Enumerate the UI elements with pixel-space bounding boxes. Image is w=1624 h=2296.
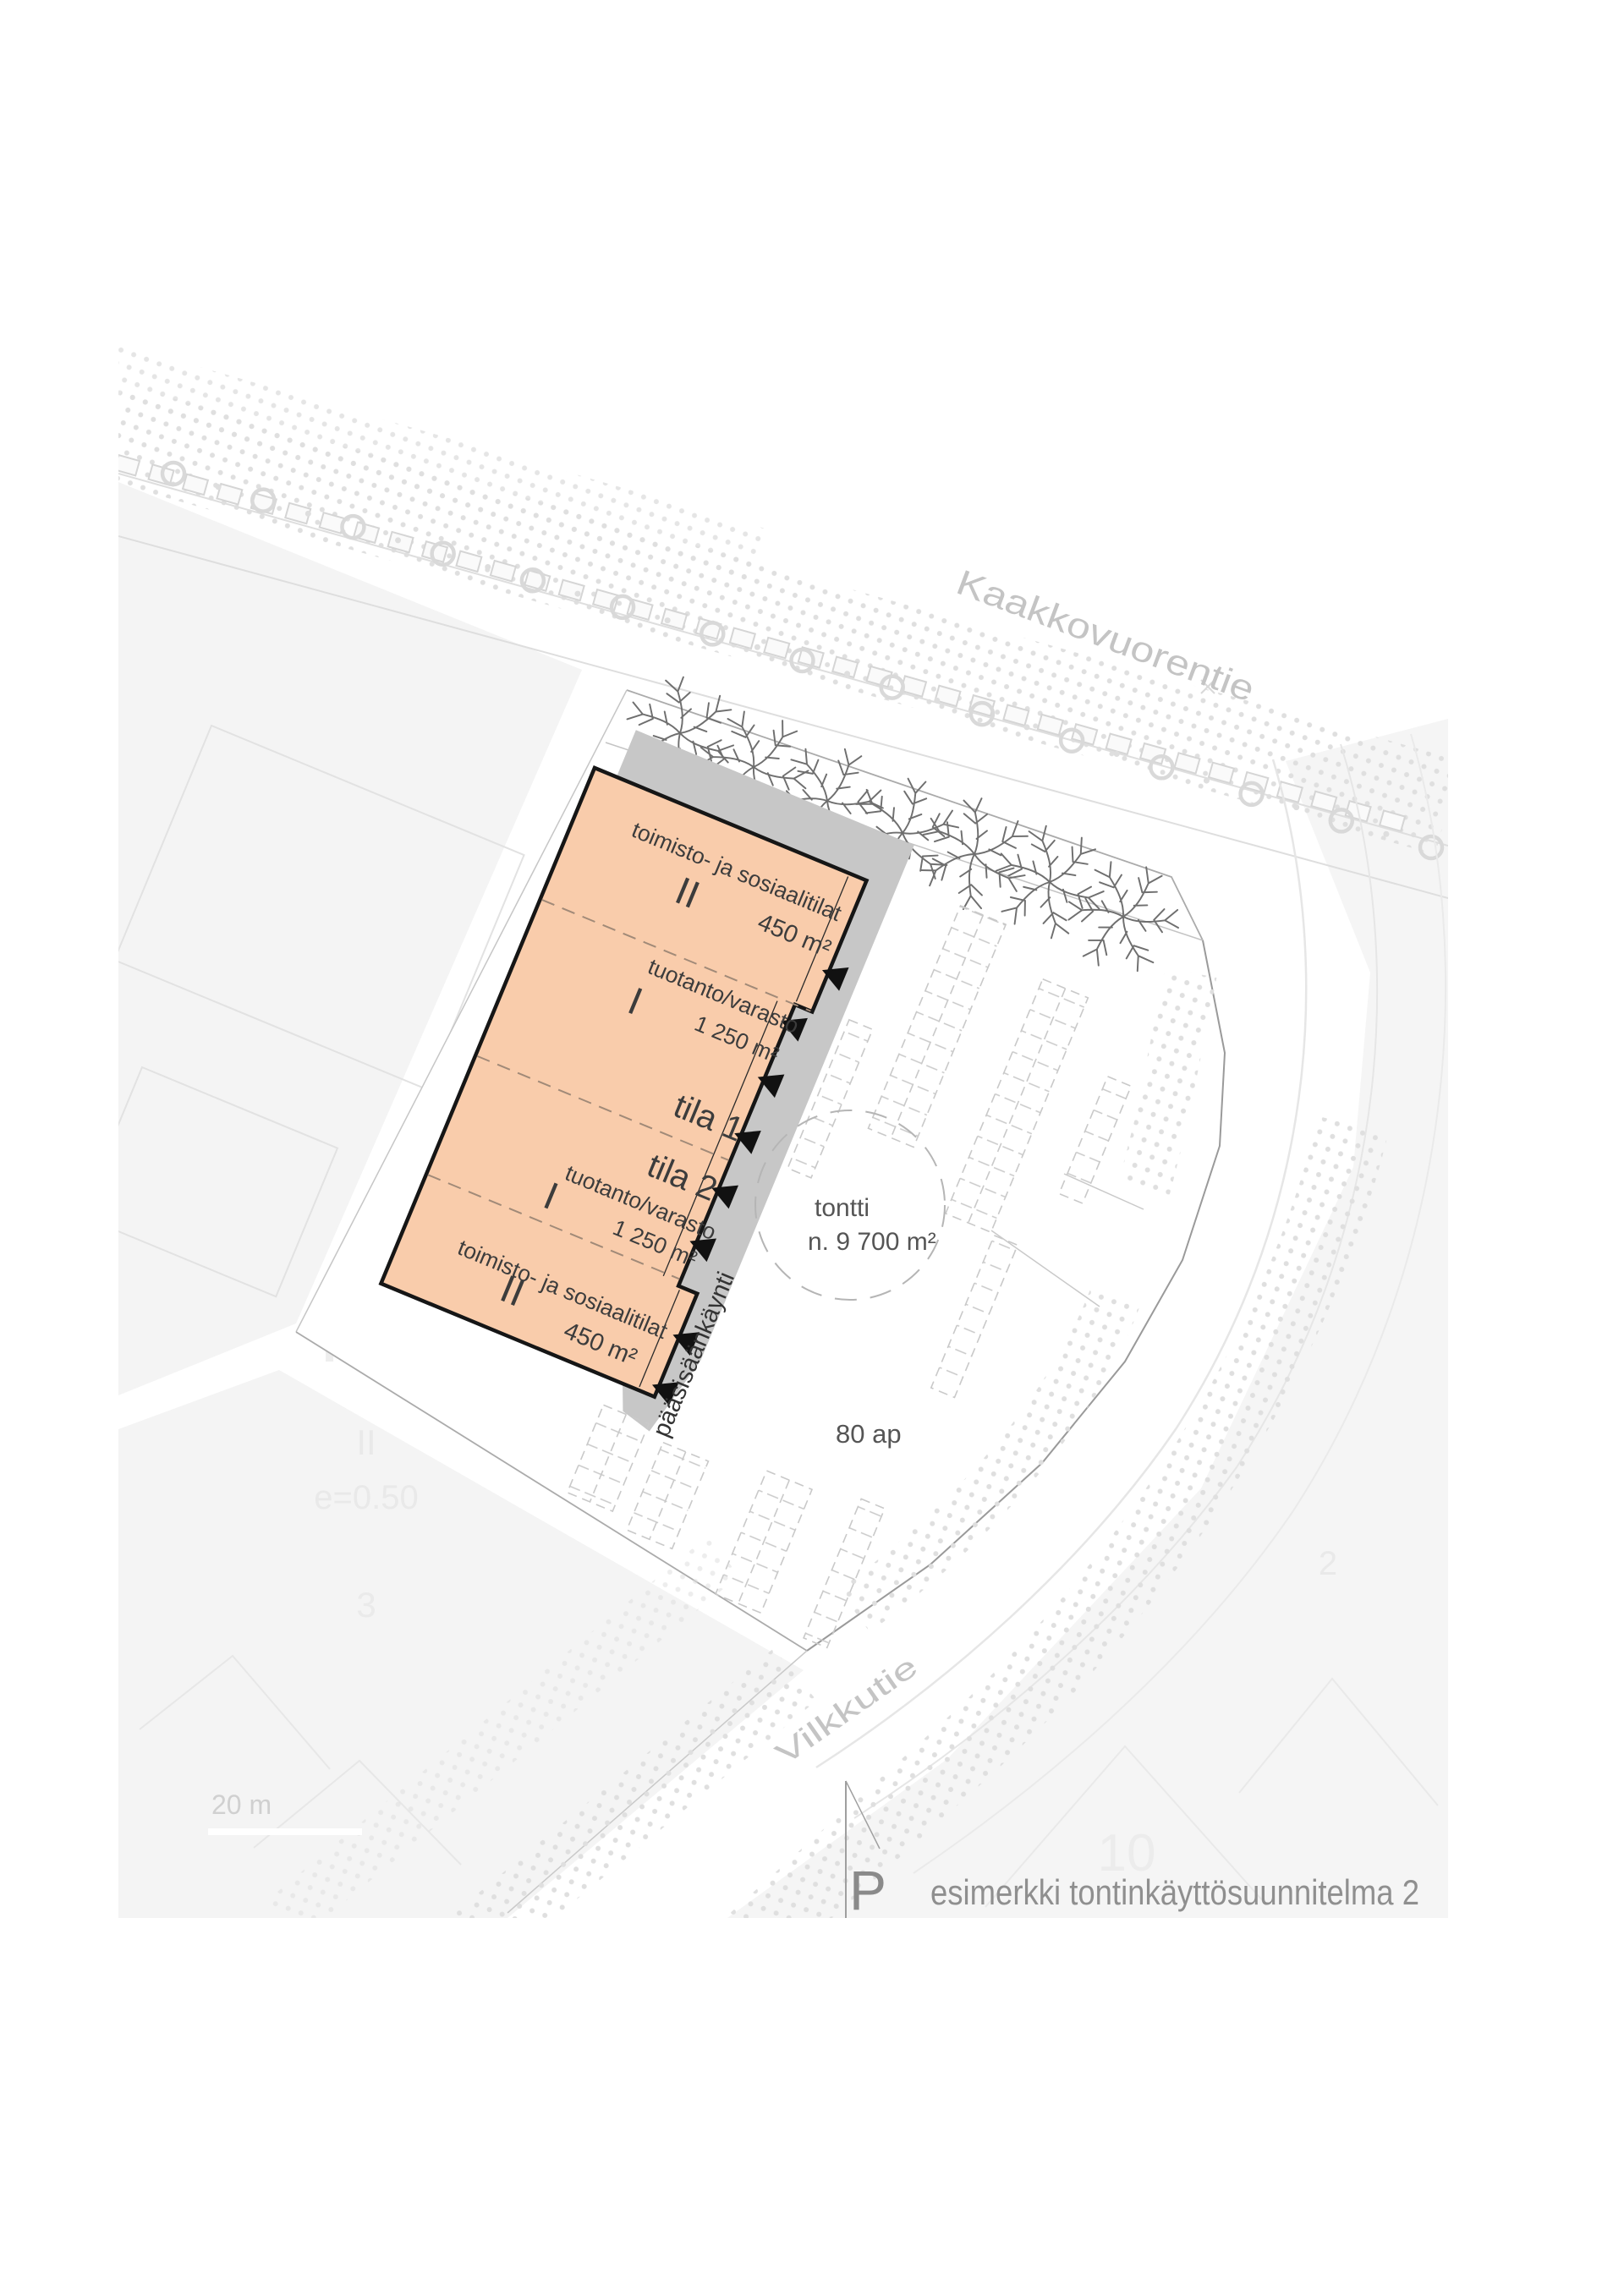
street-dot-icon [934,698,940,704]
efficiency-label: e=0.50 [314,1479,418,1516]
site-plan-page: 11 TL-4 II e=0.50 3 2 10 Kaakkovuorentie [0,0,1624,2296]
street-dot-icon [665,617,671,623]
street-dot-icon [1204,778,1210,784]
plot-name-label: tontti [815,1194,870,1222]
street-dot-icon [395,537,401,543]
north-label: P [849,1859,886,1921]
scale-label: 20 m [211,1789,272,1820]
street-dot-icon [305,511,311,517]
drawing-title: esimerkki tontinkäyttösuunnitelma 2 [930,1872,1419,1912]
street-dot-icon [1293,804,1299,810]
street-dot-icon [754,644,760,650]
street-dot-icon [1383,831,1389,837]
street-dot-icon [485,564,491,570]
left-floors-label: II [356,1422,376,1462]
site-plan-drawing: 11 TL-4 II e=0.50 3 2 10 Kaakkovuorentie [0,0,1624,2296]
plot-area-label: n. 9 700 m² [808,1228,936,1256]
street-dot-icon [1114,751,1120,757]
street-dot-icon [574,591,580,597]
street-dot-icon [844,671,850,677]
left-lot-label: 3 [356,1585,376,1625]
parking-count-label: 80 ap [836,1419,902,1449]
east-lot-label: 2 [1319,1545,1337,1582]
street-dot-icon [216,484,222,490]
street-dot-icon [1024,724,1030,730]
scale-bar-rule [208,1828,362,1835]
